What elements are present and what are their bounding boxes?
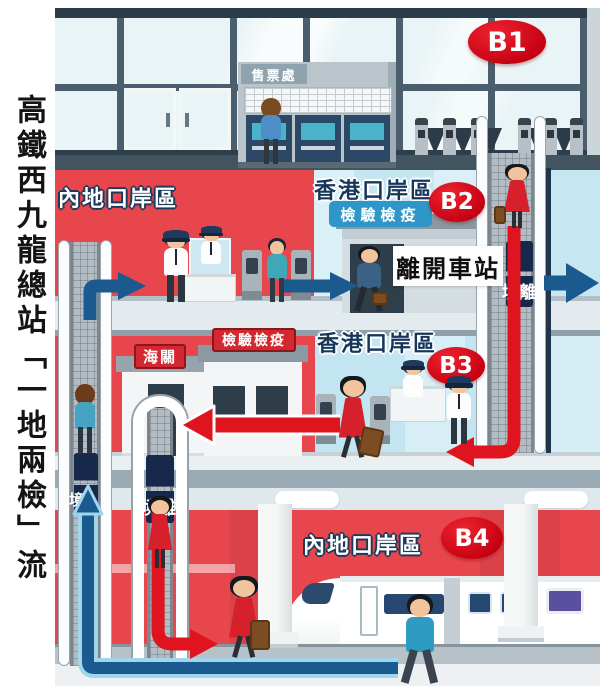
arrival-arrow-right-icon bbox=[118, 272, 146, 300]
b3-standing-officer bbox=[442, 376, 476, 444]
b4-suitcase bbox=[250, 620, 270, 650]
briefcase bbox=[372, 292, 388, 305]
arrival-exit-arrow-icon bbox=[566, 263, 599, 303]
flow-paths bbox=[0, 0, 600, 686]
arrival-arrow-up-icon bbox=[74, 486, 102, 514]
b2-standing-officer bbox=[158, 230, 194, 302]
departure-arrow-left-icon bbox=[180, 406, 214, 444]
departure-arrow-right-icon bbox=[190, 629, 218, 659]
b1-ticket-buyer bbox=[256, 98, 286, 164]
b2-traveler bbox=[263, 238, 291, 302]
b4-walking-man bbox=[400, 594, 440, 684]
station-cross-section-diagram: 售票處 bbox=[0, 0, 600, 686]
b2-escalator-bag bbox=[494, 206, 506, 224]
b3-booth-officer bbox=[398, 360, 428, 418]
arrival-escalator-man bbox=[70, 384, 100, 454]
b2-booth-officer bbox=[196, 226, 226, 286]
departure-escalator-woman bbox=[142, 496, 178, 568]
